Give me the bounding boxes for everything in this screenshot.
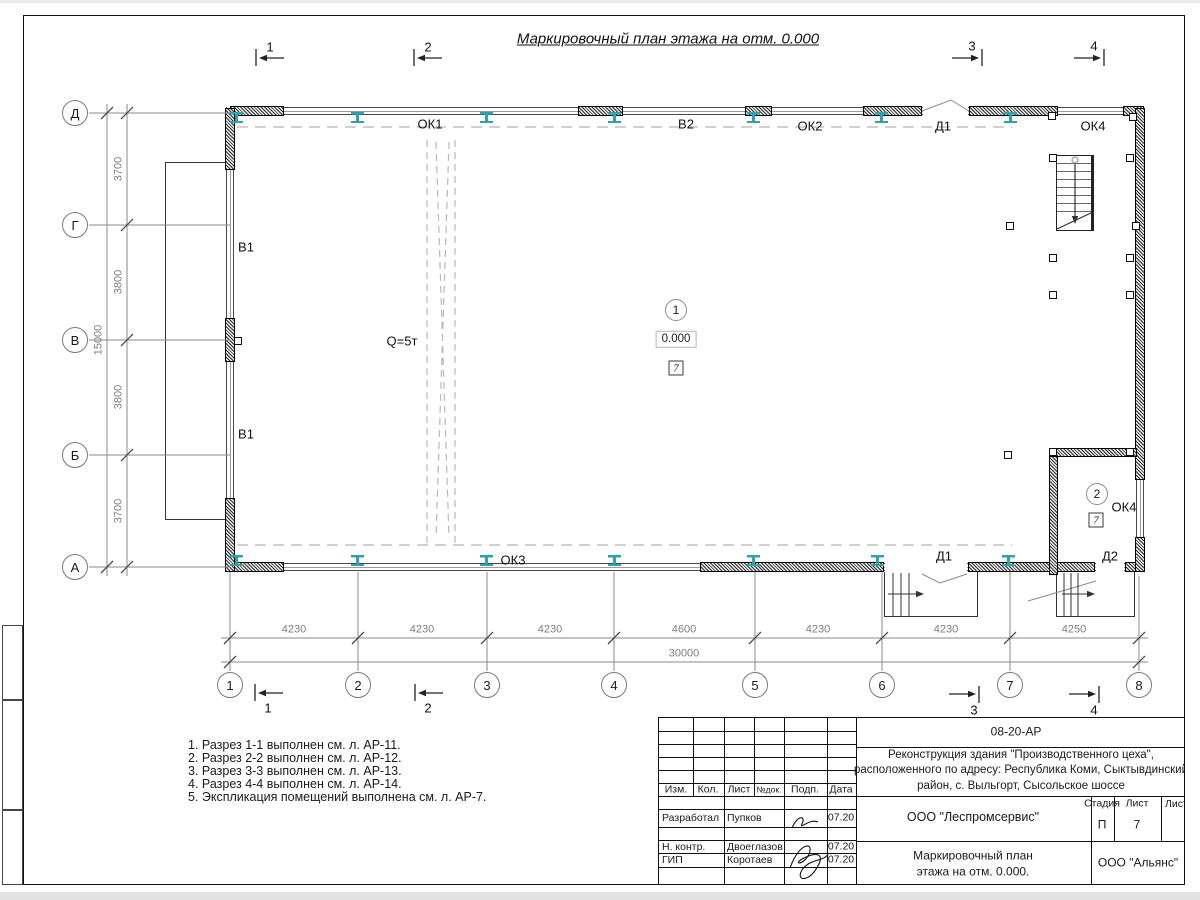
sheet-number: 7 (1134, 818, 1141, 833)
col-header-data: Дата (829, 783, 852, 796)
stage-value: П (1098, 818, 1107, 833)
axis-label: Д (71, 106, 80, 121)
document-number: 08-20-АР (991, 725, 1042, 740)
note-line: 2. Разрез 2-2 выполнен см. л. АР-12. (188, 751, 402, 765)
axis-col-6: 6 (869, 672, 895, 698)
section-mark-2: 2 (424, 702, 431, 715)
window-label-ok4: ОК4 (1081, 120, 1106, 133)
section-mark-1: 1 (266, 41, 273, 54)
dim-row-4: 3700 (114, 499, 125, 523)
dim-col-2: 4230 (410, 625, 434, 636)
crane-capacity-label: Q=5т (387, 335, 418, 348)
room-type-marker: 7 (669, 361, 684, 376)
drawing-sheet: Маркировочный план этажа на отм. 0.000 (0, 0, 1200, 900)
axis-label: 4 (610, 678, 617, 693)
titleblock-line (659, 770, 856, 771)
sheets-header: Листов (1165, 798, 1185, 809)
axis-col-3: 3 (474, 672, 500, 698)
note-line: 1. Разрез 1-1 выполнен см. л. АР-11. (188, 738, 401, 752)
axis-label: В (71, 333, 80, 348)
design-org: ООО "Леспромсервис" (907, 810, 1039, 826)
section-mark-2: 2 (424, 41, 431, 54)
elevation-marker: 0.000 (656, 331, 697, 348)
dim-row-total: 15000 (94, 325, 105, 356)
drawing-name-line: этажа на отм. 0.000. (917, 865, 1030, 880)
axis-label: Г (71, 218, 78, 233)
note-line: 3. Разрез 3-3 выполнен см. л. АР-13. (188, 764, 402, 778)
titleblock-line (659, 796, 1185, 797)
axis-label: 3 (483, 678, 490, 693)
window-label-v1: В1 (238, 428, 254, 441)
customer-org: ООО "Альянс" (1098, 856, 1178, 871)
axis-col-4: 4 (601, 672, 627, 698)
window-label-v1: В1 (238, 241, 254, 254)
axis-col-1: 1 (217, 672, 243, 698)
door-label-d1: Д1 (935, 120, 951, 133)
col-header-kol: Кол. (698, 783, 719, 796)
drawing-name-line: Маркировочный план (913, 849, 1033, 864)
axis-col-8: 8 (1126, 672, 1152, 698)
window-label-ok2: ОК2 (798, 120, 823, 133)
axis-col-5: 5 (742, 672, 768, 698)
titleblock-line (1161, 796, 1162, 841)
titleblock-line (659, 783, 856, 784)
door-label-d2: Д2 (1102, 550, 1118, 563)
axis-row-V: В (62, 327, 88, 353)
titleblock-line (856, 841, 1185, 842)
dim-col-7: 4250 (1062, 625, 1086, 636)
axis-col-2: 2 (345, 672, 371, 698)
project-description-line: Реконструкция здания "Производственного … (888, 748, 1154, 762)
role-label: ГИП (662, 855, 683, 866)
door-label-d1: Д1 (936, 550, 952, 563)
titleblock-line (659, 809, 856, 810)
window-label-ok1: ОК1 (418, 118, 443, 131)
axis-row-G: Г (62, 212, 88, 238)
dim-row-2: 3800 (114, 270, 125, 294)
titleblock-line (659, 827, 856, 828)
window-label-ok4: ОК4 (1112, 501, 1137, 514)
dim-row-1: 3700 (114, 157, 125, 181)
axis-label: А (71, 560, 80, 575)
axis-row-D: Д (62, 100, 88, 126)
room-number: 2 (1094, 487, 1101, 501)
axis-label: 1 (226, 678, 233, 693)
axis-label: 2 (354, 678, 361, 693)
dim-col-total: 30000 (669, 649, 700, 660)
dim-col-5: 4230 (806, 625, 830, 636)
role-label: Н. контр. (662, 841, 705, 852)
col-header-izm: Изм. (665, 783, 688, 796)
axis-label: 6 (878, 678, 885, 693)
sheet-header: Лист (1126, 797, 1149, 810)
person-name: Двоеглазов (727, 841, 783, 852)
axis-label: 7 (1006, 678, 1013, 693)
room-number-marker: 2 (1086, 483, 1108, 505)
dim-col-6: 4230 (934, 625, 958, 636)
section-mark-4: 4 (1090, 40, 1097, 53)
section-mark-4: 4 (1090, 704, 1097, 717)
section-mark-3: 3 (970, 704, 977, 717)
dim-row-3: 3800 (114, 385, 125, 409)
role-label: Разработал (662, 813, 719, 824)
titleblock-line (659, 867, 856, 868)
titleblock-line (659, 853, 856, 854)
room-type-marker: 7 (1089, 513, 1104, 528)
axis-row-B: Б (62, 442, 88, 468)
section-mark-3: 3 (968, 40, 975, 53)
room-number: 1 (673, 303, 680, 317)
axis-col-7: 7 (997, 672, 1023, 698)
person-name: Коротаев (727, 855, 772, 866)
note-line: 5. Экспликация помещений выполнена см. л… (188, 790, 486, 804)
title-block: 08-20-АР Реконструкция здания "Производс… (658, 717, 1185, 885)
titleblock-line (659, 731, 856, 732)
dim-col-4: 4600 (672, 625, 696, 636)
col-header-podp: Подп. (791, 783, 819, 796)
titleblock-line (659, 744, 856, 745)
dim-col-1: 4230 (282, 625, 306, 636)
person-name: Пупков (727, 813, 762, 824)
section-mark-1: 1 (264, 702, 271, 715)
window-label-ok3: ОК3 (501, 554, 526, 567)
axis-label: Б (71, 448, 80, 463)
signature (784, 806, 854, 885)
axis-label: 8 (1135, 678, 1142, 693)
titleblock-line (856, 747, 1185, 748)
axis-row-A: А (62, 554, 88, 580)
axis-label: 5 (751, 678, 758, 693)
titleblock-line (659, 840, 856, 841)
titleblock-line (856, 718, 857, 885)
note-line: 4. Разрез 4-4 выполнен см. л. АР-14. (188, 777, 402, 791)
room-number-marker: 1 (665, 299, 687, 321)
col-header-list: Лист (728, 783, 751, 796)
titleblock-line (659, 757, 856, 758)
col-header-ndok: №док. (757, 784, 782, 795)
project-description-line: район, с. Выльгорт, Сысольское шоссе (917, 779, 1125, 793)
window-label-v2: В2 (678, 118, 694, 131)
dim-col-3: 4230 (538, 625, 562, 636)
titleblock-line (1114, 796, 1115, 841)
project-description-line: расположенного по адресу: Республика Ком… (854, 763, 1185, 777)
